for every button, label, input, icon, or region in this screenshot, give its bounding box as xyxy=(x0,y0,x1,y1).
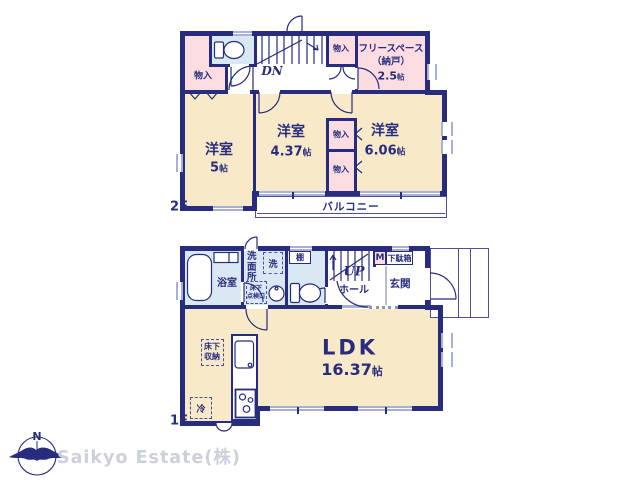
compass-north-label: N xyxy=(32,430,41,443)
area-unit: 帖 xyxy=(397,73,404,82)
wall xyxy=(326,33,329,66)
floor-label-2f: 2F xyxy=(170,201,188,214)
porch-step-line-1 xyxy=(458,249,459,317)
balcony-label: バルコニー xyxy=(322,202,379,213)
wall xyxy=(326,118,329,191)
bath-label: 浴室 xyxy=(217,279,237,289)
window xyxy=(441,122,453,136)
stairs-dn-label: DN xyxy=(261,65,282,77)
window xyxy=(213,206,243,211)
window-sliding xyxy=(358,406,412,411)
window xyxy=(441,352,453,367)
wall xyxy=(180,31,430,36)
wall xyxy=(326,64,357,67)
closet-label: 物入 xyxy=(333,45,349,53)
wall xyxy=(254,33,257,66)
freespace-name2: （納戸） xyxy=(372,57,410,67)
company-logo-text: Saikyo Estate(株) xyxy=(57,444,241,469)
room-toilet-2f xyxy=(209,33,257,67)
wall xyxy=(425,31,430,95)
window xyxy=(427,64,437,80)
door-opening xyxy=(355,68,358,89)
wall xyxy=(209,33,212,67)
sliding-door-panel xyxy=(369,306,398,309)
freespace-name: フリースペース xyxy=(359,44,424,54)
window xyxy=(176,154,183,172)
area-unit: 帖 xyxy=(219,165,228,175)
inspection-label-l2: 点検口 xyxy=(247,294,265,300)
wall xyxy=(326,118,357,121)
sash-tick xyxy=(385,407,387,414)
hall-label: ホール xyxy=(339,286,369,296)
wall xyxy=(180,421,260,426)
bedroom-a-area: 5帖 xyxy=(210,162,228,175)
area-unit: 帖 xyxy=(397,148,406,158)
ldk-name: LDK xyxy=(322,338,378,359)
window xyxy=(176,282,183,300)
room-closet-topleft xyxy=(185,36,209,64)
floorplan-page: { "colors":{"wall":"#272c7e","room_cream… xyxy=(0,0,640,480)
area-value: 5 xyxy=(210,161,219,176)
room-bedroom-437 xyxy=(255,90,329,193)
sash-tick xyxy=(292,192,294,199)
balcony-rail-line xyxy=(257,213,445,214)
window xyxy=(233,31,252,36)
balcony-sliding-door xyxy=(360,191,440,196)
window xyxy=(441,333,453,348)
balcony-sliding-door xyxy=(259,191,325,196)
sliding-door-panel xyxy=(342,305,371,308)
wall xyxy=(285,249,288,307)
stairs-up-label: UP xyxy=(343,266,364,279)
sash-tick xyxy=(297,407,299,414)
shelf-box: 棚 xyxy=(289,251,311,264)
door-opening xyxy=(425,268,430,300)
freespace-area: 2.5帖 xyxy=(378,71,405,82)
closet-label: 物入 xyxy=(194,73,212,82)
area-unit: 帖 xyxy=(372,365,383,378)
shoebox-box: 下駄箱 xyxy=(386,251,413,265)
washer-box: 洗 xyxy=(263,252,283,274)
ldk-area: 16.37帖 xyxy=(321,362,382,378)
inspection-label-l1: 床下 xyxy=(250,286,262,292)
entrance-label: 玄関 xyxy=(390,279,411,290)
wall xyxy=(182,90,444,94)
area-value: 16.37 xyxy=(321,360,372,379)
closet-label: 物入 xyxy=(333,131,349,139)
window-sliding xyxy=(270,406,324,411)
bedroom-c-name: 洋室 xyxy=(371,124,399,138)
sash-tick xyxy=(400,192,402,199)
wall xyxy=(180,31,185,211)
door-opening xyxy=(259,90,280,94)
kitchen-counter xyxy=(231,334,258,421)
storage-label-l2: 収納 xyxy=(204,353,220,361)
area-value: 2.5 xyxy=(378,70,398,83)
stairs-2f xyxy=(257,34,322,64)
bedroom-c-area: 6.06帖 xyxy=(365,145,406,158)
bedroom-b-area: 4.37帖 xyxy=(271,146,312,159)
bedroom-a-name: 洋室 xyxy=(205,143,233,157)
wall xyxy=(180,246,185,426)
area-value: 6.06 xyxy=(365,144,397,159)
wall xyxy=(326,149,357,152)
wall xyxy=(225,64,228,92)
floor-label-1f: 1F xyxy=(170,415,188,428)
storage-label-l1: 床下 xyxy=(204,343,220,351)
area-value: 4.37 xyxy=(271,145,303,160)
door-opening xyxy=(331,90,352,94)
door-opening xyxy=(241,282,244,302)
porch-step-line-2 xyxy=(470,249,471,317)
door-opening xyxy=(230,64,249,67)
wall xyxy=(253,92,256,208)
washroom-label: 洗面所 xyxy=(247,252,259,284)
area-unit: 帖 xyxy=(303,149,312,159)
bedroom-b-name: 洋室 xyxy=(277,125,305,139)
wall xyxy=(354,118,357,191)
door-opening xyxy=(246,305,268,309)
door-opening xyxy=(228,90,250,94)
window xyxy=(441,140,453,154)
meter-box: M xyxy=(374,251,386,265)
door-opening xyxy=(325,287,328,304)
fridge-box: 冷 xyxy=(190,397,212,419)
wall xyxy=(183,305,438,309)
closet-label: 物入 xyxy=(333,166,349,174)
